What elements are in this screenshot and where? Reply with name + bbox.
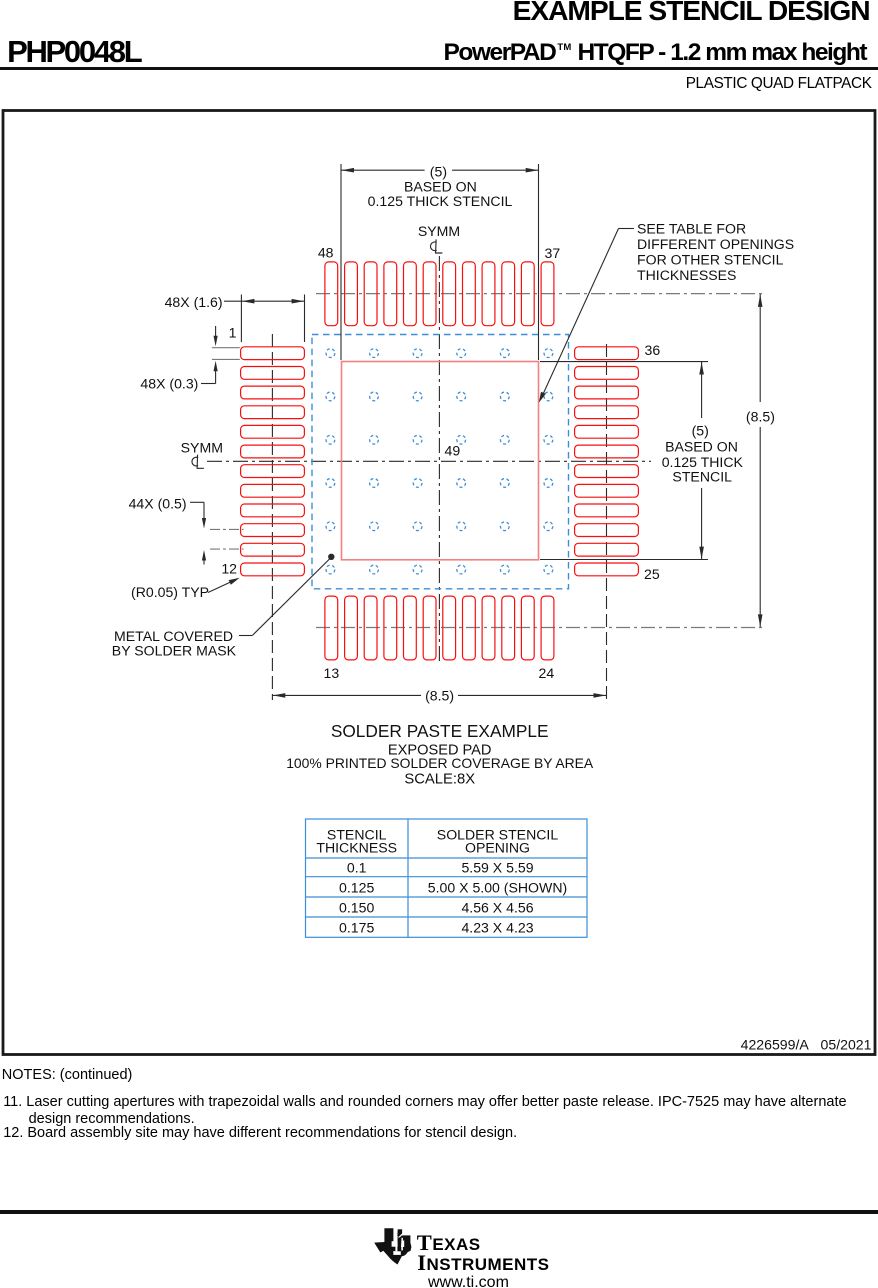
svg-text:(8.5): (8.5) [746,409,775,425]
svg-text:4226599/A 05/2021: 4226599/A 05/2021 [741,1037,872,1053]
svg-text:12: 12 [221,561,237,577]
svg-text:25: 25 [644,566,660,582]
svg-text:BY SOLDER MASK: BY SOLDER MASK [112,643,237,659]
svg-text:13: 13 [324,665,340,681]
svg-text:0.150: 0.150 [339,900,374,916]
svg-text:100% PRINTED SOLDER COVERAGE B: 100% PRINTED SOLDER COVERAGE BY AREA [286,755,594,771]
svg-text:0.1: 0.1 [347,860,367,876]
svg-text:THICKNESSES: THICKNESSES [637,267,736,283]
svg-text:36: 36 [645,342,661,358]
svg-text:37: 37 [545,245,561,261]
svg-text:48: 48 [318,245,334,261]
svg-text:4.56 X 4.56: 4.56 X 4.56 [461,900,533,916]
svg-text:SCALE:8X: SCALE:8X [404,771,475,787]
svg-text:5.59 X 5.59: 5.59 X 5.59 [461,860,533,876]
svg-text:BASED ON: BASED ON [665,439,738,455]
svg-text:SYMM: SYMM [418,223,460,239]
svg-text:44X (0.5): 44X (0.5) [129,496,187,512]
svg-text:5.00 X 5.00 (SHOWN): 5.00 X 5.00 (SHOWN) [428,879,567,895]
svg-text:0.125: 0.125 [339,879,374,895]
svg-text:48X (0.3): 48X (0.3) [140,376,198,392]
svg-text:0.175: 0.175 [339,920,374,936]
svg-text:1: 1 [229,325,237,341]
svg-text:0.125 THICK STENCIL: 0.125 THICK STENCIL [368,193,513,209]
svg-text:(R0.05) TYP: (R0.05) TYP [131,584,209,600]
svg-text:49: 49 [445,443,461,459]
svg-text:24: 24 [539,665,555,681]
svg-text:(5): (5) [430,164,447,180]
svg-text:SYMM: SYMM [181,440,223,456]
svg-text:DIFFERENT OPENINGS: DIFFERENT OPENINGS [637,236,794,252]
svg-text:SOLDER PASTE EXAMPLE: SOLDER PASTE EXAMPLE [331,721,549,741]
svg-text:STENCIL: STENCIL [672,469,732,485]
svg-text:4.23 X 4.23: 4.23 X 4.23 [461,920,533,936]
svg-text:(5): (5) [692,423,709,439]
svg-text:OPENING: OPENING [465,840,530,856]
svg-text:THICKNESS: THICKNESS [316,840,397,856]
svg-text:48X (1.6): 48X (1.6) [165,294,223,310]
svg-text:FOR OTHER STENCIL: FOR OTHER STENCIL [637,252,784,268]
svg-text:SEE TABLE FOR: SEE TABLE FOR [637,221,746,237]
svg-text:(8.5): (8.5) [425,688,454,704]
